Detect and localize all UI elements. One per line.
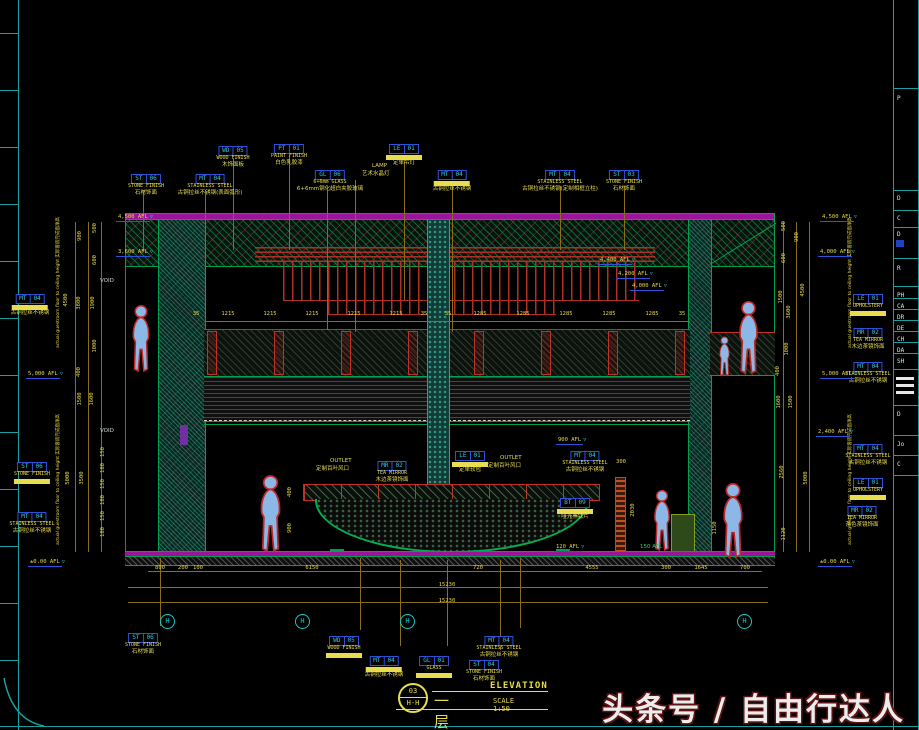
dimension-label: 1900 xyxy=(90,296,96,309)
dimension-label: 300 xyxy=(661,565,671,571)
material-tag: MT04古铜拉丝不锈钢 xyxy=(433,162,472,193)
material-tag: ST06STONE FINISH xyxy=(14,454,50,484)
cad-elevation-sheet: { "watermark": "头条号 / 自由行达人", "title": {… xyxy=(0,0,919,730)
annotation: actual guestroom floor to ceiling height… xyxy=(56,217,62,348)
leader-line xyxy=(75,222,76,552)
material-tag: GL066+6mm GLASS6+6mm钢化超白夹胶玻璃 xyxy=(297,162,363,192)
titleblock-row: C xyxy=(897,461,901,468)
annotation: 定制百叶风口 xyxy=(488,463,521,469)
material-tag: ST04STONE FINISH石材饰面 xyxy=(466,652,502,682)
material-tag: LE01UPHOLSTERY xyxy=(850,286,886,316)
title-underline xyxy=(432,691,548,692)
dimension-label: 700 xyxy=(740,565,750,571)
dimension-label: 1000 xyxy=(784,342,790,355)
elevation-marker: 900 AFL▽ xyxy=(556,426,586,445)
annotation: VOID xyxy=(100,428,114,434)
dimension-line xyxy=(0,489,18,490)
titleblock-row: R xyxy=(897,265,901,272)
grid-bubble: H xyxy=(400,614,415,629)
title-underline xyxy=(396,709,548,710)
panel-post xyxy=(608,331,618,375)
leader-line xyxy=(624,186,625,250)
dimension-label: 1645 xyxy=(694,565,707,571)
dimension-line xyxy=(0,660,18,661)
dimension-label: 2560 xyxy=(779,465,785,478)
titleblock-bar xyxy=(896,384,914,387)
watermark-text: 头条号 / 自由行达人 xyxy=(602,684,905,729)
person-figure xyxy=(717,482,749,562)
dimension-label: 1285 xyxy=(602,311,615,317)
titleblock-row: D xyxy=(897,195,901,202)
titleblock-divider xyxy=(893,475,919,476)
titleblock-divider xyxy=(893,455,919,456)
baffle-ceiling-top xyxy=(255,246,655,262)
elevation-marker: 5,000 AFL▽ xyxy=(820,360,857,379)
annotation: 艺术水晶灯 xyxy=(362,171,390,177)
elevation-marker: ±0.00 AFL▽ xyxy=(28,548,65,567)
dimension-label: 180 xyxy=(100,527,106,537)
titleblock-divider xyxy=(893,286,919,287)
material-tag: MT04古铜拉丝不锈钢 xyxy=(11,286,50,317)
dimension-label: 1600 xyxy=(776,395,782,408)
dimension-label: 500 xyxy=(92,223,98,233)
dimension-label: 1120 xyxy=(781,527,787,540)
dimension-line xyxy=(0,432,18,433)
dimension-line xyxy=(0,375,18,376)
person-figure xyxy=(733,300,764,378)
dimension-label: 1150 xyxy=(712,521,718,534)
titleblock-divider xyxy=(893,353,919,354)
title-en: ELEVATION xyxy=(490,681,548,691)
leader-line xyxy=(809,222,810,552)
dimension-label: 35 xyxy=(193,311,200,317)
leader-line xyxy=(327,190,328,330)
person-figure xyxy=(716,336,733,380)
material-tag: MR02TEA MIRROR木边茶镜饰面 xyxy=(851,320,884,350)
dimension-label: 150 xyxy=(100,447,106,457)
baffle-ceiling-mid xyxy=(283,262,639,301)
material-tag: WD05WOOD FINISH木饰面板 xyxy=(216,138,249,168)
dimension-label: 1000 xyxy=(92,339,98,352)
dimension-label: 3500 xyxy=(79,471,85,484)
sheet-corner-arc xyxy=(0,672,46,728)
annotation: VOID xyxy=(100,278,114,284)
dimension-line xyxy=(0,318,18,319)
elevation-marker: ±0.00 AFL▽ xyxy=(818,548,855,567)
elevation-marker: 4,000 AFL▽ xyxy=(818,238,855,257)
dimension-line xyxy=(0,603,18,604)
annotation: actual guestroom floor to ceiling height… xyxy=(56,414,62,545)
floor-hatch-band xyxy=(125,556,775,566)
ceiling-line xyxy=(125,213,775,218)
elevation-marker: 120 AFL▽ xyxy=(554,533,584,552)
dimension-label: 15230 xyxy=(439,582,456,588)
dimension-label: 500 xyxy=(781,221,787,231)
leader-line xyxy=(404,160,405,300)
left-wall-line xyxy=(125,213,126,560)
leader-line xyxy=(452,186,453,332)
purple-detail xyxy=(180,425,188,445)
grid-bubble: H xyxy=(737,614,752,629)
material-tag: WD05WOOD FINISH xyxy=(326,628,362,658)
dimension-line xyxy=(148,571,762,572)
panel-post xyxy=(274,331,284,375)
titleblock-divider xyxy=(893,369,919,370)
dimension-label: 6150 xyxy=(305,565,318,571)
annotation: LAMP xyxy=(372,163,387,169)
material-tag: BT09哑光黑钛片 xyxy=(557,490,593,521)
titleblock-row: D xyxy=(897,411,901,418)
elevation-marker: 5,000 AFL▽ xyxy=(26,360,63,379)
panel-post xyxy=(541,331,551,375)
dimension-label: 1215 xyxy=(263,311,276,317)
material-tag: MR02TEA MIRROR茶色茶镜饰面 xyxy=(845,498,878,528)
leader-line xyxy=(796,222,797,552)
material-tag: ST06STONE FINISH石材饰面 xyxy=(128,166,164,196)
titleblock-bar xyxy=(896,391,914,394)
material-tag: MR02TEA MIRROR木边茶镜饰面 xyxy=(375,453,408,483)
dimension-label: 150 xyxy=(100,479,106,489)
titleblock-row: D xyxy=(897,231,901,238)
dimension-label: 1215 xyxy=(221,311,234,317)
dimension-label: 900 xyxy=(287,523,293,533)
material-tag: LE01定单吊灯 xyxy=(386,136,422,167)
titleblock-divider xyxy=(893,320,919,321)
dimension-label: 1600 xyxy=(89,392,95,405)
elevation-marker: 2,400 AFL▽ xyxy=(816,418,853,437)
dimension-label: 400 xyxy=(76,367,82,377)
titleblock-divider xyxy=(893,298,919,299)
leader-line xyxy=(360,558,361,630)
dimension-label: 3800 xyxy=(76,296,82,309)
dimension-label: 300 xyxy=(616,459,626,465)
titleblock-divider xyxy=(893,88,919,89)
dimension-label: 1285 xyxy=(473,311,486,317)
titleblock-divider xyxy=(893,405,919,406)
dimension-label: 35 xyxy=(421,311,428,317)
left-stone-pier xyxy=(158,220,206,552)
dimension-line xyxy=(0,261,18,262)
dimension-line xyxy=(205,321,690,322)
dimension-label: 3600 xyxy=(786,305,792,318)
material-tag: MT04STAINLESS STEEL古铜拉丝不锈钢 xyxy=(562,443,607,473)
material-tag: ST06STONE FINISH石材饰面 xyxy=(125,625,161,655)
titleblock-row: P xyxy=(897,95,901,102)
titleblock-color-chip xyxy=(896,240,904,247)
titleblock-row: Jo xyxy=(897,441,904,448)
material-tag: MT04古铜拉丝不锈钢 xyxy=(365,648,404,679)
dimension-line xyxy=(0,90,18,91)
titleblock-divider xyxy=(893,190,919,191)
dimension-line xyxy=(0,546,18,547)
dimension-label: 1215 xyxy=(305,311,318,317)
elevation-marker: 4,000 AFL▽ xyxy=(630,272,667,291)
right-wall-line xyxy=(774,213,775,560)
leader-line xyxy=(289,155,290,250)
dimension-line xyxy=(0,204,18,205)
right-stone-pier xyxy=(688,220,712,552)
titleblock-row: SH xyxy=(897,358,904,365)
dimension-label: 1215 xyxy=(347,311,360,317)
titleblock-divider xyxy=(893,342,919,343)
panel-post xyxy=(474,331,484,375)
titleblock-divider xyxy=(893,227,919,228)
material-tag: ST03STONE FINISH石材饰面 xyxy=(606,162,642,192)
leader-line xyxy=(205,190,206,318)
grid-bubble: H xyxy=(295,614,310,629)
elevation-marker: 4,500 AFL▽ xyxy=(820,203,857,222)
panel-post xyxy=(675,331,685,375)
leader-line xyxy=(560,186,561,250)
leader-line xyxy=(400,560,401,646)
annotation: 定制百叶风口 xyxy=(316,466,349,472)
dimension-label: 1285 xyxy=(516,311,529,317)
dimension-line xyxy=(0,33,18,34)
dimension-label: 600 xyxy=(92,255,98,265)
dimension-label: 1215 xyxy=(389,311,402,317)
dimension-label: 200 xyxy=(178,565,188,571)
dimension-label: 1285 xyxy=(559,311,572,317)
titleblock-row: C xyxy=(897,215,901,222)
sheet-left-ruler-line xyxy=(18,0,19,730)
annotation: OUTLET xyxy=(500,455,522,461)
titleblock-divider xyxy=(893,309,919,310)
dimension-label: 35 xyxy=(679,311,686,317)
elevation-marker: 4,500 AFL▽ xyxy=(116,203,153,222)
dimension-label: 180 xyxy=(100,463,106,473)
dimension-label: 1500 xyxy=(778,290,784,303)
dimension-label: 15230 xyxy=(439,598,456,604)
titleblock-divider xyxy=(893,258,919,259)
dimension-label: 100 xyxy=(193,565,203,571)
titleblock-divider xyxy=(893,435,919,436)
material-tag: MT04STAINLESS STEEL古铜拉丝不锈钢 xyxy=(9,504,54,534)
person-figure xyxy=(127,304,155,376)
dimension-label: 400 xyxy=(287,487,293,497)
dimension-label: 1285 xyxy=(645,311,658,317)
title-cn: 一层立面图 xyxy=(434,690,450,730)
titleblock-left-border xyxy=(893,0,894,730)
titleblock-bar xyxy=(896,377,914,380)
side-panel xyxy=(615,477,626,553)
dimension-label: 35 xyxy=(445,311,452,317)
dimension-label: 4500 xyxy=(63,293,69,306)
dimension-label: 900 xyxy=(794,232,800,242)
material-tag: MT04STAINLESS STEEL古铜拉丝不锈钢(表面弧形) xyxy=(178,166,243,196)
dimension-label: 4500 xyxy=(800,283,806,296)
dimension-label: 5000 xyxy=(65,471,71,484)
person-figure xyxy=(254,474,287,556)
elevation-marker: 3,600 AFL▽ xyxy=(116,238,153,257)
dimension-label: 800 xyxy=(155,565,165,571)
dimension-label: 720 xyxy=(473,565,483,571)
dimension-label: 1500 xyxy=(77,392,83,405)
desk-bowl xyxy=(315,499,589,553)
material-tag: MT04STAINLESS STEEL古铜拉丝不锈钢(定制相框立柱) xyxy=(522,162,598,192)
title-scale: SCALE 1:50 xyxy=(493,697,514,713)
leader-line xyxy=(520,558,521,628)
leader-line xyxy=(88,222,89,552)
dimension-label: 4555 xyxy=(585,565,598,571)
dimension-label: 2030 xyxy=(630,503,636,516)
panel-post xyxy=(207,331,217,375)
dimension-label: 5000 xyxy=(803,471,809,484)
annotation: OUTLET xyxy=(330,458,352,464)
material-tag: LE01UPHOLSTERY xyxy=(850,470,886,500)
panel-post xyxy=(341,331,351,375)
leader-line xyxy=(783,222,784,552)
dimension-label: 400 xyxy=(775,366,781,376)
panel-post xyxy=(408,331,418,375)
dimension-label: 1500 xyxy=(788,395,794,408)
dimension-line xyxy=(0,147,18,148)
material-tag: MT04STAINLESS STEEL古铜拉丝不锈钢 xyxy=(845,436,890,466)
dimension-label: 600 xyxy=(781,253,787,263)
leader-line xyxy=(355,180,356,332)
titleblock-divider xyxy=(893,331,919,332)
dimension-label: 150 xyxy=(100,511,106,521)
material-tag: LE01定单软包 xyxy=(452,443,488,474)
bubble-number: 03 xyxy=(400,685,426,698)
bubble-ref: H-H xyxy=(400,698,426,709)
dimension-label: 180 xyxy=(100,495,106,505)
annotation: 150 AFL xyxy=(640,544,662,550)
grid-bubble: H xyxy=(160,614,175,629)
titleblock-divider xyxy=(893,210,919,211)
dimension-label: 900 xyxy=(77,231,83,241)
material-tag: GL01GLASS xyxy=(416,648,452,678)
